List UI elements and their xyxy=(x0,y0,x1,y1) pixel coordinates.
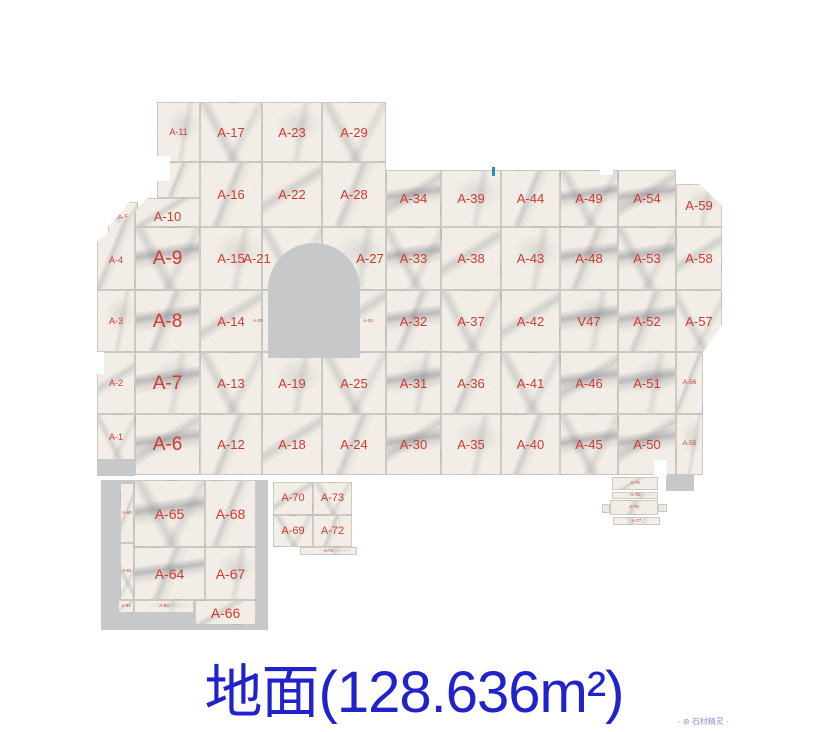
tile-A-53: A-53 xyxy=(618,227,676,290)
tile-A-63: A-63 xyxy=(134,600,194,613)
tile-A-65: A-65 xyxy=(134,480,205,547)
tile-A-57: A-57 xyxy=(676,290,722,352)
tile-A-23: A-23 xyxy=(262,102,322,162)
tile-label: A-48 xyxy=(575,252,602,265)
tile-A-69: A-69 xyxy=(273,515,313,547)
tile-A-61: A-61 xyxy=(120,543,134,600)
tile-A-60: A-60 xyxy=(120,483,134,543)
tile-label: A-65 xyxy=(155,507,185,521)
tile-blank xyxy=(658,504,667,512)
tile-label: A-10 xyxy=(154,210,181,223)
tile-label: A-66 xyxy=(211,606,241,620)
tile-A-44: A-44 xyxy=(501,170,560,227)
tile-label: A-58 xyxy=(685,252,712,265)
tile-A-55: A-55 xyxy=(676,414,703,475)
edge-notch xyxy=(654,460,667,476)
tile-A-49: A-49 xyxy=(560,170,618,227)
tile-label: A-68 xyxy=(216,507,246,521)
tile-label: A-45 xyxy=(575,438,602,451)
tile-label: A-9 xyxy=(153,249,183,268)
tile-A-10: A-10 xyxy=(135,198,200,227)
tile-label: A-1 xyxy=(109,433,123,442)
tile-label: A-71 xyxy=(324,549,334,554)
tile-A-32: A-32 xyxy=(386,290,441,352)
tile-A-31: A-31 xyxy=(386,352,441,414)
tile-label: A-72 xyxy=(321,526,344,537)
tile-label: A-16 xyxy=(217,188,244,201)
tile-label: A-12 xyxy=(217,438,244,451)
tile-label: A-75 xyxy=(630,493,640,498)
tile-label: A-42 xyxy=(517,315,544,328)
tile-label: A-60 xyxy=(122,511,132,516)
tile-A-33: A-33 xyxy=(386,227,441,290)
tile-A-43: A-43 xyxy=(501,227,560,290)
gray-piece xyxy=(666,475,694,491)
tile-A-66: A-66 xyxy=(195,600,256,625)
tile-label: A-25 xyxy=(340,377,367,390)
tile-A-28: A-28 xyxy=(322,162,386,227)
tile-label: A-44 xyxy=(517,192,544,205)
tile-A-68: A-68 xyxy=(205,480,256,547)
tile-label: A-73 xyxy=(321,493,344,504)
tile-label: A-13 xyxy=(217,377,244,390)
tile-A-42: A-42 xyxy=(501,290,560,352)
tile-A-72: A-72 xyxy=(313,515,352,547)
tile-A-45: A-45 xyxy=(560,414,618,475)
tile-label: A-69 xyxy=(281,526,304,537)
tile-A-46: A-46 xyxy=(560,352,618,414)
tile-label: A-62 xyxy=(121,604,131,609)
tile-label: A-7 xyxy=(153,374,183,393)
tile-label: A-61 xyxy=(122,569,132,574)
tile-A-24: A-24 xyxy=(322,414,386,475)
tile-A-62: A-62 xyxy=(118,600,134,613)
tile-A-38: A-38 xyxy=(441,227,501,290)
tile-label: A-55 xyxy=(683,441,697,448)
tile-A-58: A-58 xyxy=(676,227,722,290)
tile-label: A-38 xyxy=(457,252,484,265)
tile-label: A-31 xyxy=(400,377,427,390)
tile-A-70: A-70 xyxy=(273,482,313,515)
tile-label: A-70 xyxy=(281,493,304,504)
tile-A-7: A-7 xyxy=(135,352,200,414)
tile-label: A-2 xyxy=(109,379,123,388)
tile-A-56: A-56 xyxy=(676,352,703,414)
tile-label: A-28 xyxy=(340,188,367,201)
floor-plan: A-11A-17A-23A-29A-16A-22A-28A-10A-5A-34A… xyxy=(0,0,828,732)
tile-label: A-14 xyxy=(217,315,244,328)
tile-A-40: A-40 xyxy=(501,414,560,475)
tile-label: V47 xyxy=(577,315,600,328)
tile-label: A-29 xyxy=(340,126,367,139)
tile-label: A-6 xyxy=(153,435,183,454)
tile-label: A-39 xyxy=(457,192,484,205)
tile-label: A-43 xyxy=(517,252,544,265)
edge-notch xyxy=(93,352,104,374)
tile-label: A-41 xyxy=(517,377,544,390)
tile-A-9: A-9 xyxy=(135,227,200,290)
tile-V47: V47 xyxy=(560,290,618,352)
tile-A-34: A-34 xyxy=(386,170,441,227)
tile-label: A-32 xyxy=(400,315,427,328)
tile-label: A-63 xyxy=(159,604,169,609)
tile-A-74: A-74 xyxy=(612,477,658,490)
tile-A-37: A-37 xyxy=(441,290,501,352)
tile-A-67: A-67 xyxy=(205,547,256,600)
tile-A-77: A-77 xyxy=(613,517,660,525)
edge-notch xyxy=(157,156,170,181)
tile-label: A-4 xyxy=(109,256,123,265)
tile-label: A-49 xyxy=(575,192,602,205)
tile-A-48: A-48 xyxy=(560,227,618,290)
tile-label: A-53 xyxy=(633,252,660,265)
tile-A-35: A-35 xyxy=(441,414,501,475)
tile-label: A-50 xyxy=(633,438,660,451)
blue-tick xyxy=(492,167,495,176)
tile-label: A-46 xyxy=(575,377,602,390)
tile-label: A-20 xyxy=(253,319,263,324)
tile-A-18: A-18 xyxy=(262,414,322,475)
tile-label: A-37 xyxy=(457,315,484,328)
tile-A-76: A-76 xyxy=(610,500,658,515)
tile-label: A-34 xyxy=(400,192,427,205)
tile-label: A-59 xyxy=(685,199,712,212)
tile-A-52: A-52 xyxy=(618,290,676,352)
tile-A-16: A-16 xyxy=(200,162,262,227)
tile-label: A-21 xyxy=(243,252,270,265)
tile-A-39: A-39 xyxy=(441,170,501,227)
tile-A-12: A-12 xyxy=(200,414,262,475)
tile-A-59: A-59 xyxy=(676,184,722,227)
tile-label: A-57 xyxy=(685,315,712,328)
tile-label: A-76 xyxy=(629,505,639,510)
tile-A-19: A-19 xyxy=(262,352,322,414)
tile-A-6: A-6 xyxy=(135,414,200,475)
tile-label: A-15 xyxy=(217,252,244,265)
watermark: - ⊛ 石材精灵 - xyxy=(678,716,729,727)
tile-label: A-19 xyxy=(278,377,305,390)
tile-A-73: A-73 xyxy=(313,482,352,515)
tile-A-50: A-50 xyxy=(618,414,676,475)
tile-A-13: A-13 xyxy=(200,352,262,414)
tile-label: A-54 xyxy=(633,192,660,205)
edge-notch xyxy=(600,167,613,175)
tile-label: A-3 xyxy=(109,317,123,326)
tile-A-36: A-36 xyxy=(441,352,501,414)
tile-label: A-24 xyxy=(340,438,367,451)
tile-label: A-74 xyxy=(630,481,640,486)
tile-A-29: A-29 xyxy=(322,102,386,162)
gray-piece xyxy=(97,460,135,476)
tile-label: A-23 xyxy=(278,126,305,139)
tile-label: A-67 xyxy=(216,567,246,581)
tile-label: A-33 xyxy=(400,252,427,265)
tile-label: A-27 xyxy=(356,252,383,265)
tile-A-3: A-3 xyxy=(97,290,135,352)
tile-A-41: A-41 xyxy=(501,352,560,414)
tile-label: A-26 xyxy=(363,319,373,324)
arch-cutout xyxy=(268,243,360,358)
tile-label: A-35 xyxy=(457,438,484,451)
tile-blank xyxy=(602,504,610,513)
tile-label: A-56 xyxy=(683,380,697,387)
tile-A-1: A-1 xyxy=(97,414,135,460)
tile-label: A-64 xyxy=(155,567,185,581)
tile-A-75: A-75 xyxy=(612,492,658,499)
tile-A-22: A-22 xyxy=(262,162,322,227)
tile-label: A-36 xyxy=(457,377,484,390)
tile-A-25: A-25 xyxy=(322,352,386,414)
tile-A-17: A-17 xyxy=(200,102,262,162)
tile-label: A-18 xyxy=(278,438,305,451)
tile-label: A-52 xyxy=(633,315,660,328)
tile-A-11: A-11 xyxy=(157,102,200,162)
tile-A-30: A-30 xyxy=(386,414,441,475)
tile-label: A-22 xyxy=(278,188,305,201)
tile-label: A-77 xyxy=(632,519,642,524)
tile-A-71: A-71 xyxy=(300,547,357,555)
tile-label: A-51 xyxy=(633,377,660,390)
tile-label: A-40 xyxy=(517,438,544,451)
tile-label: A-8 xyxy=(153,312,183,331)
tile-label: A-30 xyxy=(400,438,427,451)
tile-A-8: A-8 xyxy=(135,290,200,352)
tile-label: A-17 xyxy=(217,126,244,139)
tile-A-51: A-51 xyxy=(618,352,676,414)
tile-A-54: A-54 xyxy=(618,170,676,227)
tile-label: A-11 xyxy=(169,128,187,137)
tile-A-64: A-64 xyxy=(134,547,205,600)
